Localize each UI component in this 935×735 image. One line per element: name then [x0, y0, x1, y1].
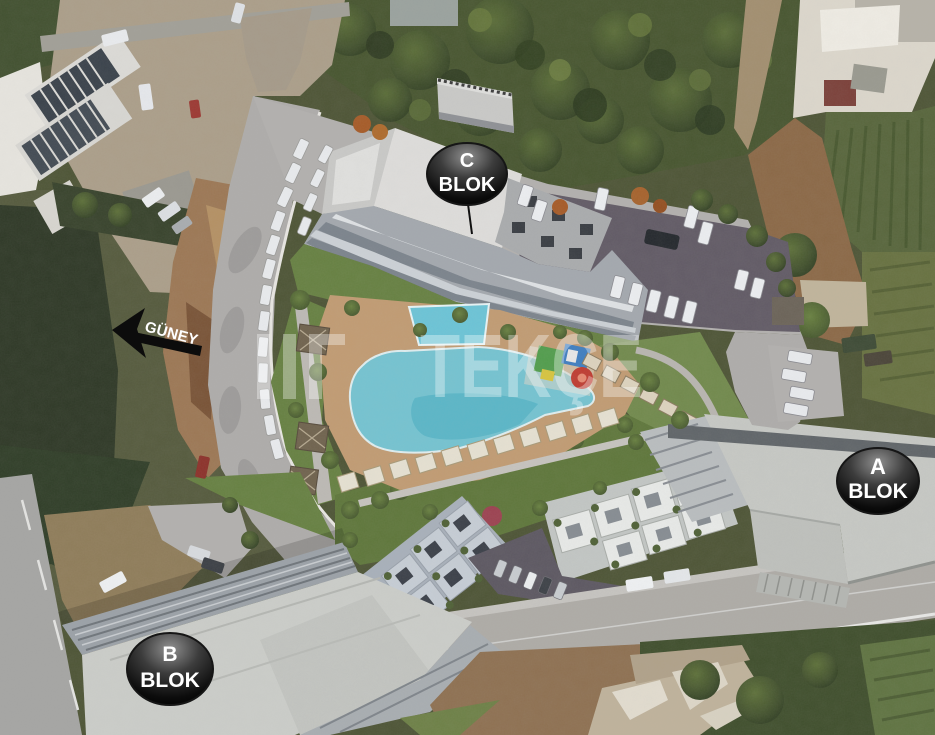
svg-text:A: A	[870, 454, 886, 479]
svg-text:TEKÇE: TEKÇE	[420, 316, 643, 417]
svg-text:C: C	[460, 150, 474, 172]
svg-text:BLOK: BLOK	[439, 174, 496, 196]
svg-text:BLOK: BLOK	[140, 669, 200, 692]
svg-text:B: B	[162, 643, 177, 666]
svg-text:BLOK: BLOK	[848, 480, 908, 503]
